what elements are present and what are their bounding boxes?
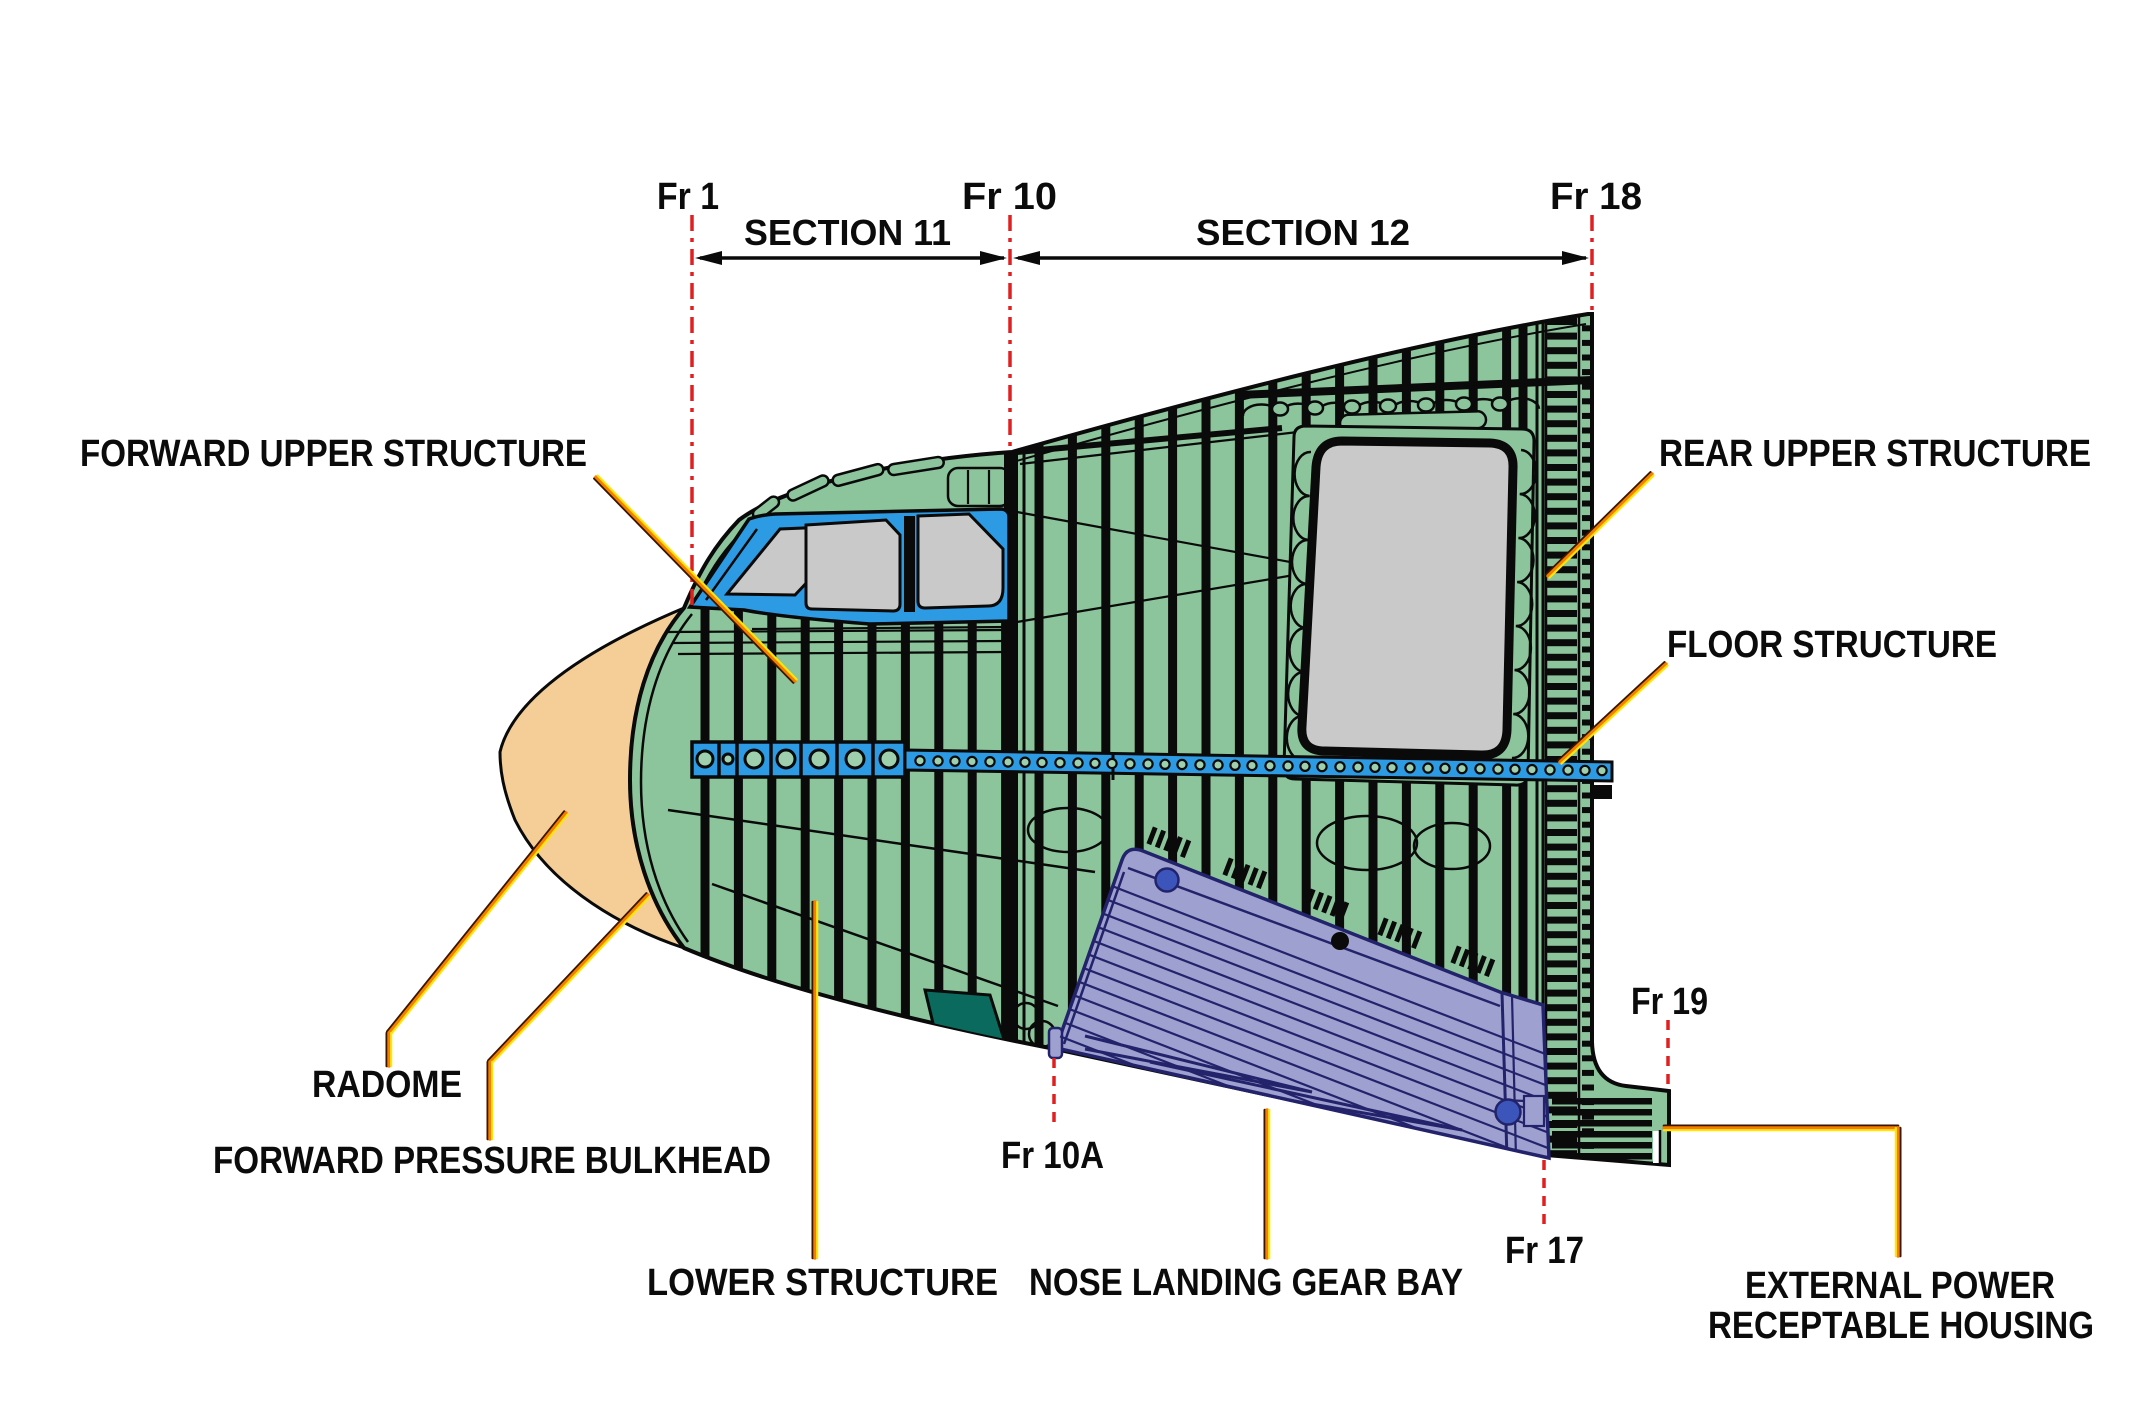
svg-text:Fr 10A: Fr 10A [1001,1135,1104,1177]
svg-text:FLOOR STRUCTURE: FLOOR STRUCTURE [1667,624,1997,666]
svg-text:RADOME: RADOME [312,1064,462,1106]
svg-text:FORWARD PRESSURE BULKHEAD: FORWARD PRESSURE BULKHEAD [213,1140,771,1182]
svg-text:NOSE LANDING GEAR BAY: NOSE LANDING GEAR BAY [1029,1262,1463,1304]
svg-text:Fr 18: Fr 18 [1550,176,1642,218]
svg-text:Fr 17: Fr 17 [1505,1230,1584,1272]
svg-text:RECEPTABLE HOUSING: RECEPTABLE HOUSING [1708,1305,2094,1347]
svg-text:EXTERNAL POWER: EXTERNAL POWER [1745,1265,2055,1307]
svg-text:REAR UPPER STRUCTURE: REAR UPPER STRUCTURE [1659,433,2091,475]
svg-text:Fr 10: Fr 10 [962,176,1057,218]
svg-text:SECTION 11: SECTION 11 [744,212,951,253]
svg-text:FORWARD UPPER STRUCTURE: FORWARD UPPER STRUCTURE [80,433,587,475]
svg-text:Fr 19: Fr 19 [1631,981,1708,1023]
svg-text:LOWER STRUCTURE: LOWER STRUCTURE [647,1262,998,1304]
svg-text:SECTION 12: SECTION 12 [1196,212,1410,253]
svg-text:Fr 1: Fr 1 [657,176,719,218]
